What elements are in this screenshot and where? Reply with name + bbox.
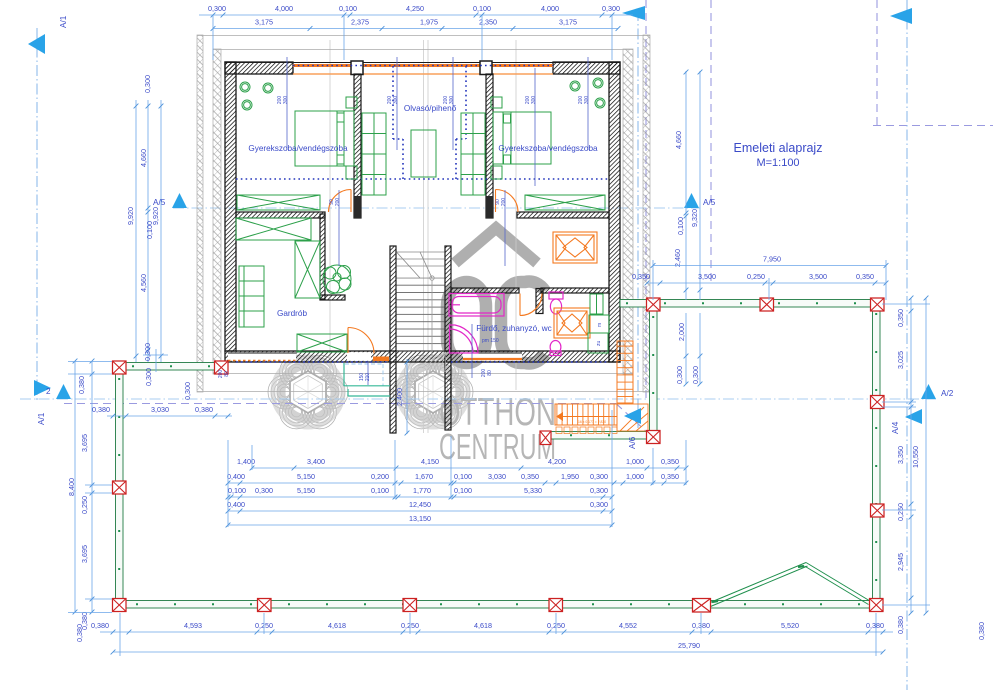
svg-text:0,300: 0,300	[143, 343, 152, 361]
svg-text:0,350: 0,350	[856, 272, 874, 281]
svg-text:5,520: 5,520	[781, 621, 799, 630]
svg-text:8,400: 8,400	[67, 478, 76, 496]
svg-text:0,300: 0,300	[208, 4, 226, 13]
svg-text:3,175: 3,175	[559, 18, 577, 27]
svg-text:12,450: 12,450	[409, 500, 431, 509]
svg-text:0,100: 0,100	[454, 486, 472, 495]
svg-text:200: 200	[335, 198, 341, 207]
svg-text:2,000: 2,000	[677, 323, 686, 341]
svg-text:9,920: 9,920	[151, 207, 160, 225]
svg-text:4,150: 4,150	[421, 457, 439, 466]
svg-text:300: 300	[449, 96, 455, 105]
svg-text:4,618: 4,618	[474, 621, 492, 630]
svg-text:4,593: 4,593	[184, 621, 202, 630]
svg-text:0,100: 0,100	[339, 4, 357, 13]
svg-text:0,380: 0,380	[77, 376, 86, 394]
svg-text:A/1: A/1	[37, 412, 46, 425]
svg-text:0,200: 0,200	[371, 472, 389, 481]
svg-text:1,950: 1,950	[561, 472, 579, 481]
svg-text:4,618: 4,618	[328, 621, 346, 630]
svg-text:4,000: 4,000	[275, 4, 293, 13]
svg-text:0,100: 0,100	[676, 217, 685, 235]
svg-text:0,380: 0,380	[866, 621, 884, 630]
svg-text:3,030: 3,030	[151, 405, 169, 414]
svg-text:3,350: 3,350	[896, 446, 905, 464]
svg-text:4,000: 4,000	[541, 4, 559, 13]
svg-text:0,380: 0,380	[896, 616, 905, 634]
svg-text:1,000: 1,000	[626, 457, 644, 466]
svg-text:0,380: 0,380	[195, 405, 213, 414]
svg-text:10,550: 10,550	[911, 446, 920, 468]
svg-text:1,975: 1,975	[420, 18, 438, 27]
svg-text:3,695: 3,695	[80, 545, 89, 563]
svg-text:300: 300	[283, 96, 289, 105]
svg-text:4,560: 4,560	[139, 274, 148, 292]
svg-text:7,950: 7,950	[763, 255, 781, 264]
svg-text:5,150: 5,150	[297, 486, 315, 495]
svg-text:0,350: 0,350	[896, 309, 905, 327]
svg-text:0,300: 0,300	[590, 500, 608, 509]
svg-text:2,945: 2,945	[896, 553, 905, 571]
svg-text:0,300: 0,300	[590, 472, 608, 481]
svg-text:1,000: 1,000	[626, 472, 644, 481]
svg-text:0,300: 0,300	[255, 486, 273, 495]
svg-text:4,660: 4,660	[139, 149, 148, 167]
svg-text:Emeleti alaprajz: Emeleti alaprajz	[734, 141, 823, 155]
svg-text:0,250: 0,250	[747, 272, 765, 281]
svg-text:zu: zu	[596, 341, 602, 347]
svg-text:25,790: 25,790	[678, 641, 700, 650]
svg-text:Gardrób: Gardrób	[277, 309, 307, 318]
svg-text:A/4: A/4	[891, 421, 900, 434]
svg-text:Olvasó/pihenő: Olvasó/pihenő	[404, 104, 457, 113]
svg-text:0,350: 0,350	[521, 472, 539, 481]
svg-text:4,250: 4,250	[406, 4, 424, 13]
svg-text:200: 200	[501, 198, 507, 207]
svg-text:3,030: 3,030	[488, 472, 506, 481]
svg-text:0,400: 0,400	[227, 472, 245, 481]
svg-text:0,380: 0,380	[91, 621, 109, 630]
svg-text:80: 80	[224, 371, 230, 377]
svg-text:2: 2	[46, 387, 51, 396]
svg-text:0,100: 0,100	[454, 472, 472, 481]
svg-text:2,400: 2,400	[395, 388, 404, 406]
svg-text:0,100: 0,100	[371, 486, 389, 495]
svg-text:4,660: 4,660	[674, 131, 683, 149]
svg-text:A/2: A/2	[941, 389, 954, 398]
svg-text:4,552: 4,552	[619, 621, 637, 630]
svg-text:1,770: 1,770	[413, 486, 431, 495]
svg-text:0,250: 0,250	[896, 503, 905, 521]
svg-text:2,460: 2,460	[673, 249, 682, 267]
svg-text:0,380: 0,380	[75, 624, 84, 642]
svg-text:m: m	[597, 323, 603, 327]
svg-text:0,300: 0,300	[183, 382, 192, 400]
svg-text:0,300: 0,300	[602, 4, 620, 13]
svg-text:3,025: 3,025	[896, 351, 905, 369]
svg-text:3,175: 3,175	[255, 18, 273, 27]
svg-text:0,350: 0,350	[661, 472, 679, 481]
svg-text:2,375: 2,375	[351, 18, 369, 27]
svg-text:5,150: 5,150	[297, 472, 315, 481]
svg-text:0,100: 0,100	[228, 486, 246, 495]
svg-text:300: 300	[393, 96, 399, 105]
svg-text:A/5: A/5	[153, 198, 166, 207]
svg-text:0,300: 0,300	[691, 366, 700, 384]
svg-text:0,300: 0,300	[675, 366, 684, 384]
svg-text:0,350: 0,350	[661, 457, 679, 466]
svg-text:16 x 0,177 = 2,830: 16 x 0,177 = 2,830	[578, 420, 606, 424]
svg-text:M=1:100: M=1:100	[756, 157, 799, 169]
svg-text:0,300: 0,300	[143, 75, 152, 93]
svg-text:3,500: 3,500	[698, 272, 716, 281]
svg-text:4,200: 4,200	[548, 457, 566, 466]
svg-text:3,400: 3,400	[307, 457, 325, 466]
svg-text:A/5: A/5	[703, 198, 716, 207]
svg-text:0,300: 0,300	[590, 486, 608, 495]
svg-text:0,350: 0,350	[632, 272, 650, 281]
svg-text:pm 150: pm 150	[482, 338, 499, 344]
svg-text:5,330: 5,330	[524, 486, 542, 495]
svg-text:Fürdő, zuhanyzó, wc: Fürdő, zuhanyzó, wc	[476, 324, 552, 333]
svg-text:Gyerekszoba/vendégszoba: Gyerekszoba/vendégszoba	[248, 144, 348, 153]
svg-text:0,300: 0,300	[144, 368, 153, 386]
svg-text:0,100: 0,100	[473, 4, 491, 13]
svg-text:80: 80	[487, 370, 493, 376]
svg-text:CENTRUM: CENTRUM	[439, 426, 556, 467]
svg-text:300: 300	[584, 96, 590, 105]
svg-text:A/6: A/6	[628, 436, 637, 449]
svg-text:9,920: 9,920	[126, 207, 135, 225]
svg-text:0,380: 0,380	[977, 622, 986, 640]
svg-text:13,150: 13,150	[409, 514, 431, 523]
svg-text:0,380: 0,380	[92, 405, 110, 414]
svg-text:Gyerekszoba/vendégszoba: Gyerekszoba/vendégszoba	[498, 144, 598, 153]
svg-text:9,320: 9,320	[690, 209, 699, 227]
svg-text:3,500: 3,500	[809, 272, 827, 281]
svg-text:300: 300	[531, 96, 537, 105]
svg-text:3,695: 3,695	[80, 434, 89, 452]
svg-text:A/1: A/1	[59, 15, 68, 28]
svg-text:0,400: 0,400	[227, 500, 245, 509]
svg-text:0,250: 0,250	[80, 496, 89, 514]
svg-text:1,670: 1,670	[415, 472, 433, 481]
